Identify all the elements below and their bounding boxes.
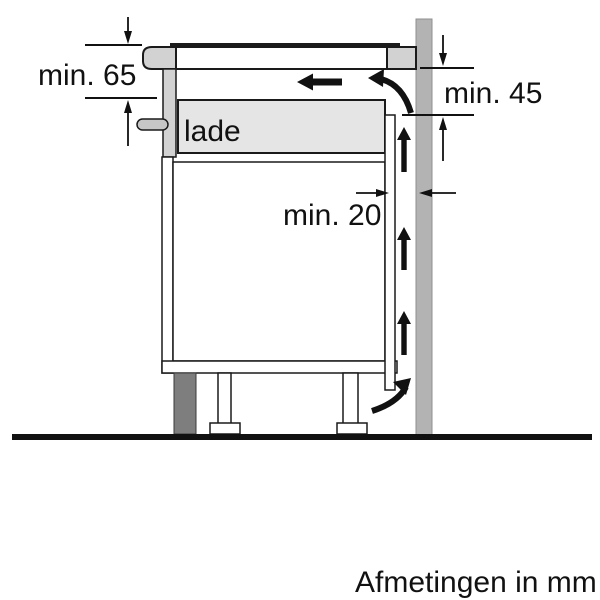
drawer-handle [137,119,168,130]
cabinet-leg-rear-foot [337,423,367,434]
floor-line [12,434,592,440]
drawer-label: lade [184,115,241,148]
installation-diagram-page: lade min. 65 [0,0,600,600]
dimension-arrowhead-icon [124,31,132,44]
airflow-up-arrow-icon [397,311,411,355]
hob-body [176,47,387,69]
dimension-hob-depth-label: min. 65 [38,59,136,92]
airflow-curve-top-head-icon [368,69,384,87]
worktop-front-edge [143,47,176,69]
cabinet-front-strip [163,69,176,157]
cabinet-side-panel [162,157,173,373]
airflow-up-arrow-icon [397,227,411,270]
airflow-up-arrow-icon [397,127,411,172]
installation-diagram: lade min. 65 [0,0,600,600]
cabinet-leg-rear [343,373,358,424]
plinth-panel [174,373,196,434]
cabinet-bottom-panel [162,361,397,373]
dimension-rear-gap-label: min. 20 [283,199,381,232]
dimension-arrowhead-icon [439,53,447,66]
caption: Afmetingen in mm [355,566,597,599]
worktop-right-section [387,47,416,69]
airflow-left-arrow-icon [297,74,342,91]
cabinet-leg-front-foot [210,423,240,434]
wall [416,19,432,435]
cabinet-leg-front [218,373,231,424]
cabinet-interior [173,162,385,361]
dimension-wall-side-label: min. 45 [444,77,542,110]
dimension-arrowhead-icon [124,100,132,113]
dimension-arrowhead-icon [439,117,447,130]
cabinet-back-panel [385,115,395,390]
